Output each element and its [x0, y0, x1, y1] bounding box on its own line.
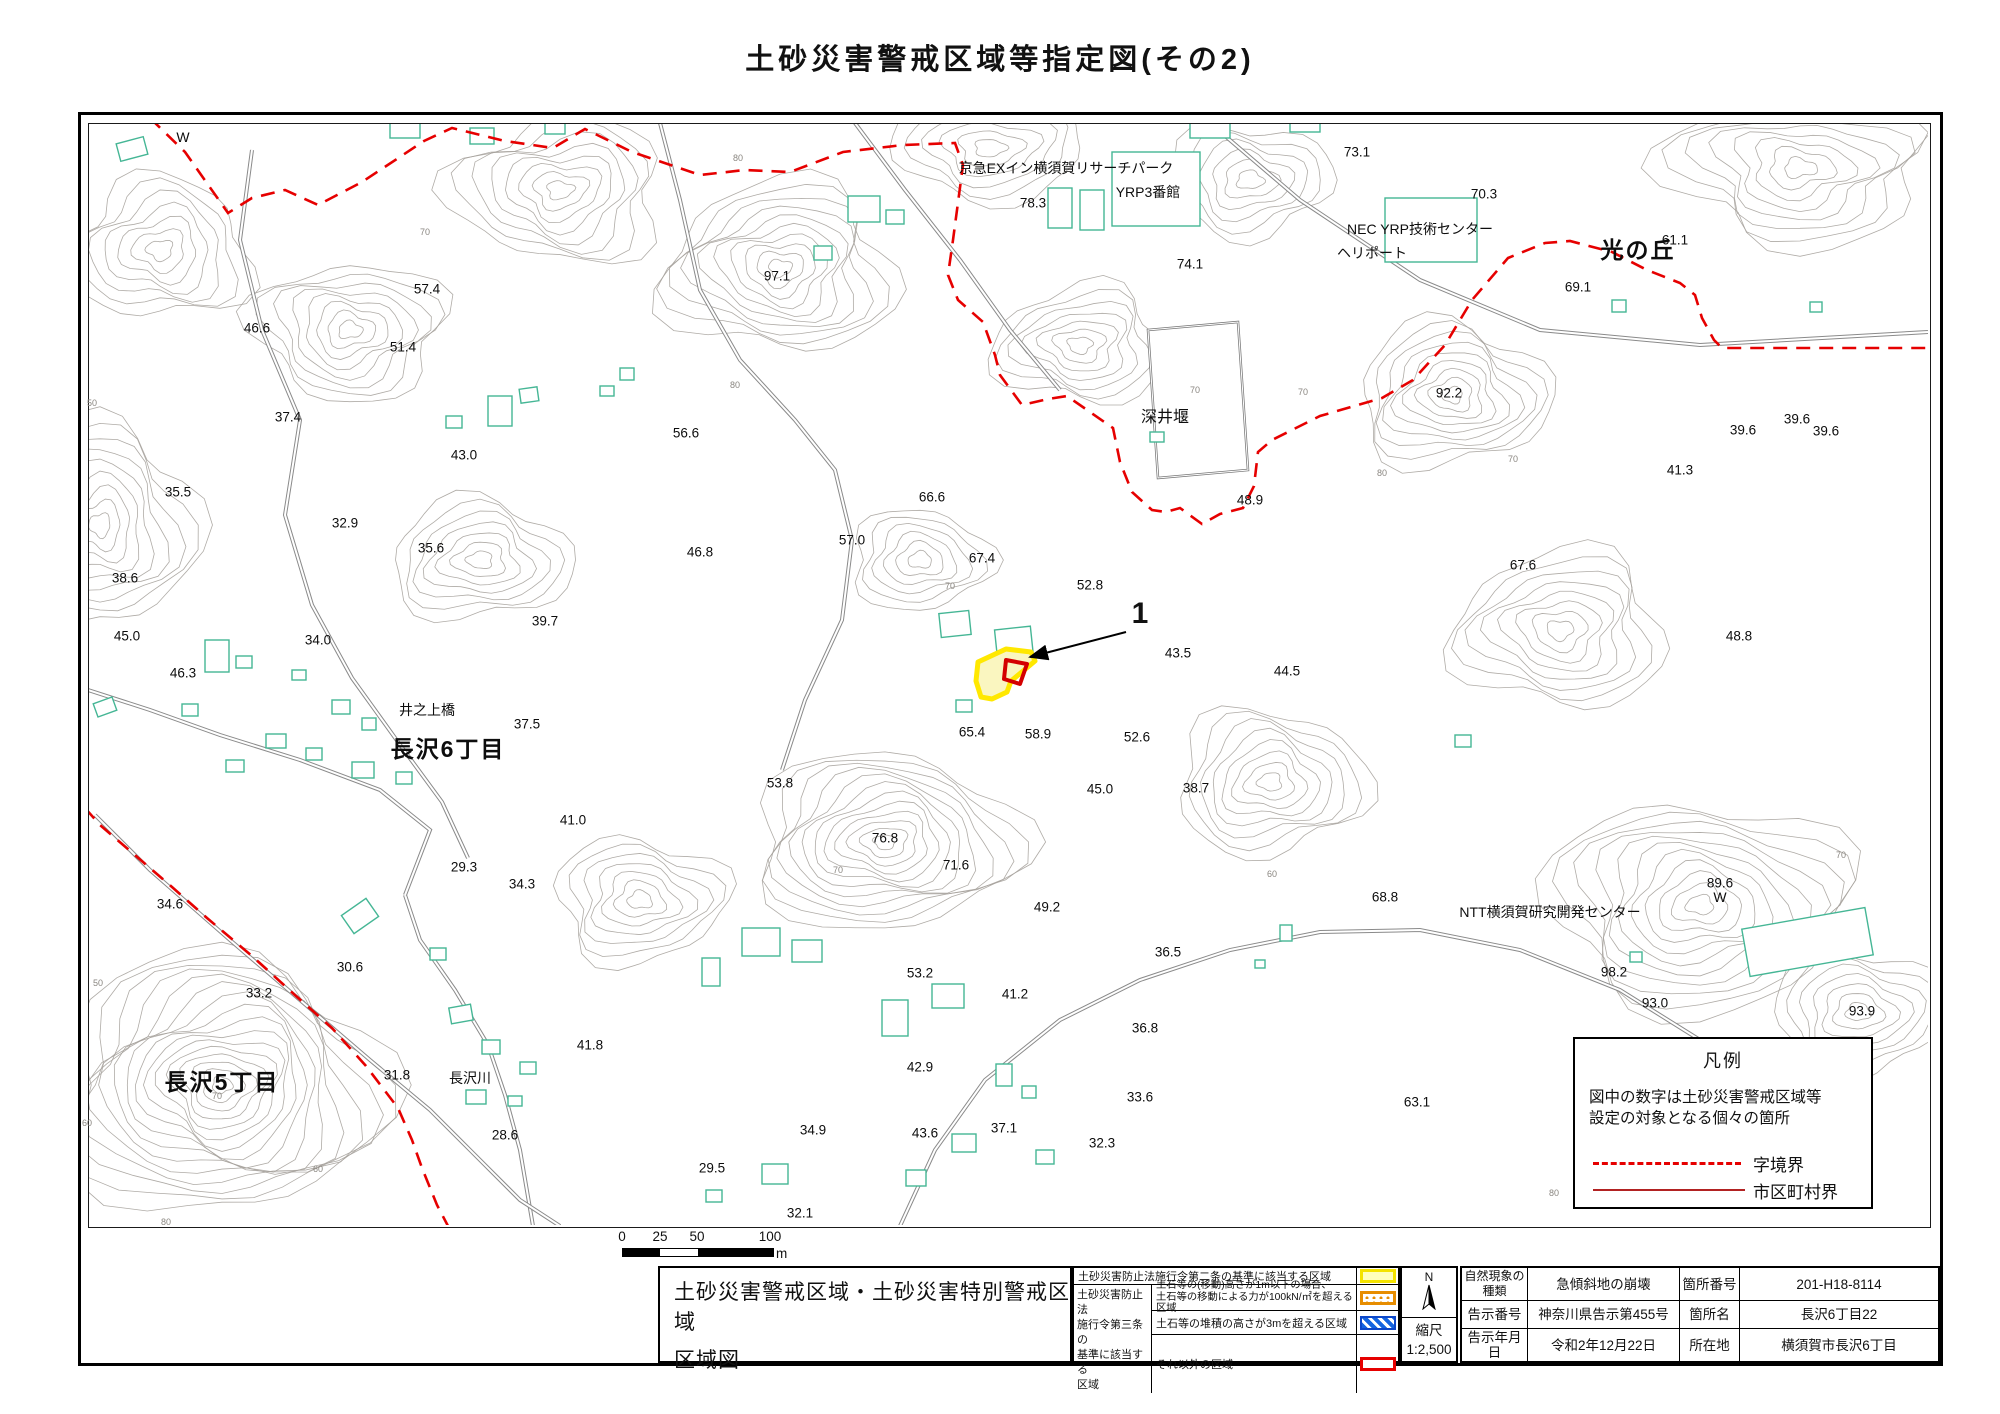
debris-force-line1: 土石等の(移動)高さが1m以下の場合、 — [1156, 1280, 1356, 1292]
contour-line — [328, 310, 376, 349]
legend-article3-line1: 土砂災害防止法 — [1077, 1289, 1143, 1316]
contour-line — [975, 140, 1009, 157]
contour-line — [777, 767, 993, 906]
contour-line — [236, 266, 453, 402]
contour-line — [681, 206, 855, 327]
scalebar-seg-white — [660, 1249, 698, 1256]
building-footprint — [906, 1170, 926, 1186]
building-footprint — [236, 656, 252, 668]
contour-line — [465, 551, 492, 569]
scale-cell: 縮尺 1:2,500 — [1402, 1318, 1456, 1361]
contour-line — [802, 782, 960, 892]
contour-line — [180, 1054, 269, 1119]
info-value-site-number: 201-H18-8114 — [1740, 1268, 1938, 1301]
contour-line — [855, 510, 1003, 610]
contour-line — [627, 890, 653, 909]
contour-line — [908, 550, 931, 568]
building-footprint — [466, 1090, 486, 1104]
contour-line — [1067, 337, 1094, 354]
scalebar-unit: m — [776, 1246, 787, 1261]
scalebar-tick-0: 0 — [618, 1229, 626, 1244]
contour-line — [824, 801, 939, 882]
north-arrow-icon — [1422, 1284, 1436, 1310]
building-footprint — [430, 948, 446, 960]
building-footprint — [1048, 188, 1072, 228]
contour-line — [922, 115, 1058, 188]
map-legend-title: 凡例 — [1575, 1047, 1871, 1073]
contour-line — [1428, 377, 1472, 412]
legend-row-debris-force-swatch-cell — [1357, 1285, 1398, 1310]
contour-line — [602, 871, 683, 926]
blue-zone-swatch — [1360, 1316, 1396, 1330]
building-footprint — [762, 1164, 788, 1184]
building-footprint — [600, 386, 614, 396]
legend-row-other-label: それ以外の区域 — [1152, 1335, 1357, 1393]
building-footprint — [956, 700, 972, 712]
scalebar-seg-black2 — [698, 1249, 773, 1256]
building-footprint — [886, 210, 904, 224]
contour-line — [1547, 621, 1574, 642]
contour-line — [72, 942, 411, 1211]
contour-line — [256, 274, 445, 395]
building-footprint — [60, 455, 74, 475]
contour-line — [1236, 170, 1265, 189]
legend-row-deposit-height: 土石等の堆積の高さが3mを超える区域 — [1152, 1311, 1398, 1335]
aza-boundary-dashed-line — [150, 118, 1928, 524]
building-footprint — [482, 1040, 500, 1054]
map-title-line1: 土砂災害警戒区域・土砂災害特別警戒区域 — [674, 1276, 1070, 1336]
contour-line — [872, 523, 973, 594]
road-centre — [660, 123, 852, 770]
building-footprint — [292, 670, 306, 680]
building-footprint — [792, 940, 822, 962]
contour-line — [1440, 386, 1462, 404]
contour-line — [904, 108, 1068, 199]
contour-line — [768, 259, 792, 278]
contour-line — [1833, 994, 1886, 1029]
contour-line — [67, 955, 396, 1199]
road-casing — [88, 690, 430, 895]
contour-line — [27, 449, 169, 590]
contour-line — [1785, 156, 1818, 178]
contour-line — [118, 216, 196, 285]
building-footprint — [742, 928, 780, 956]
contour-line — [155, 1040, 285, 1140]
building-footprint — [882, 1000, 908, 1036]
contour-line — [1242, 762, 1294, 800]
building-footprint — [1385, 198, 1477, 262]
building-footprint — [116, 137, 148, 162]
orange-zone-swatch — [1360, 1291, 1396, 1305]
yellow-zone-swatch — [1360, 1269, 1396, 1283]
contour-line — [166, 1046, 277, 1129]
compass-cell: N — [1402, 1268, 1456, 1318]
map-title-line2: 区域図 — [674, 1344, 1070, 1374]
contour-line — [273, 283, 431, 388]
callout-arrow — [1030, 632, 1126, 657]
building-footprint — [1255, 960, 1265, 968]
building-footprint — [205, 640, 229, 672]
legend-article3-group-label: 土砂災害防止法 施行令第三条の 基準に該当する 区域 — [1074, 1285, 1152, 1393]
contour-line — [78, 499, 120, 552]
contour-line — [896, 540, 943, 575]
building-footprint — [932, 984, 964, 1008]
road-centre — [95, 815, 560, 1226]
contour-line — [1414, 368, 1481, 418]
contour-line — [51, 471, 138, 572]
building-footprint — [1080, 190, 1104, 230]
info-label-notice-number: 告示番号 — [1462, 1301, 1528, 1329]
legend-article3-line2: 施行令第三条の — [1077, 1319, 1143, 1346]
contour-line — [472, 132, 638, 255]
scalebar-tick-25: 25 — [652, 1229, 667, 1244]
map-legend-note: 図中の数字は土砂災害警戒区域等 設定の対象となる個々の箇所 — [1589, 1087, 1871, 1129]
scalebar-tick-100: 100 — [759, 1229, 782, 1244]
legend-row-other-swatch-cell — [1357, 1335, 1398, 1393]
building-footprint — [1112, 152, 1200, 226]
contour-line — [939, 122, 1044, 176]
contour-line — [714, 223, 840, 316]
contour-line — [1181, 706, 1378, 861]
info-value-location: 横須賀市長沢6丁目 — [1740, 1329, 1938, 1361]
info-label-site-number: 箇所番号 — [1680, 1268, 1740, 1301]
legend-row-other: それ以外の区域 — [1152, 1335, 1398, 1393]
contour-line — [204, 1069, 246, 1103]
contour-line — [1443, 540, 1669, 710]
building-footprint — [706, 1190, 722, 1202]
contour-line — [1516, 601, 1603, 663]
contour-line — [553, 835, 736, 971]
map-legend-note-line2: 設定の対象となる個々の箇所 — [1589, 1110, 1790, 1127]
contour-line — [11, 407, 212, 628]
contour-line — [1403, 360, 1496, 424]
building-footprint — [488, 396, 512, 426]
building-footprint — [952, 1134, 976, 1152]
contour-line — [883, 531, 956, 584]
building-footprint — [93, 697, 117, 717]
contour-line — [1189, 711, 1361, 851]
designation-info-table: 自然現象の種類 急傾斜地の崩壊 箇所番号 201-H18-8114 告示番号 神… — [1460, 1266, 1940, 1363]
contour-line — [1036, 321, 1118, 371]
hazard-legend-table: 土砂災害防止法施行令第二条の基準に該当する区域 土砂災害防止法 施行令第三条の … — [1072, 1266, 1400, 1363]
contour-line — [1187, 131, 1320, 234]
contour-line — [317, 301, 388, 359]
building-footprint — [446, 416, 462, 428]
north-label: N — [1425, 1270, 1434, 1284]
contour-line — [449, 542, 505, 576]
legend-article3-line4: 区域 — [1077, 1379, 1099, 1391]
info-value-phenomenon: 急傾斜地の崩壊 — [1528, 1268, 1680, 1301]
legend-row-article2-swatch-cell — [1357, 1268, 1398, 1284]
contour-line — [988, 275, 1165, 405]
contour-line — [532, 172, 590, 212]
legend-solid-label: 市区町村界 — [1753, 1178, 1838, 1203]
contour-line — [413, 511, 551, 600]
contour-line — [1532, 611, 1588, 652]
legend-row-debris-force-label: 土石等の(移動)高さが1m以下の場合、 土石等の移動による力が100kN/㎡を超… — [1152, 1285, 1357, 1310]
contour-line — [72, 178, 239, 306]
legend-dashed-line-sample — [1593, 1162, 1741, 1165]
building-footprint — [332, 700, 350, 714]
contour-line — [105, 202, 208, 294]
contour-line — [1375, 320, 1548, 459]
map-legend-box: 凡例 図中の数字は土砂災害警戒区域等 設定の対象となる個々の箇所 字境界 市区町… — [1573, 1037, 1873, 1209]
building-footprint — [362, 718, 376, 730]
building-footprint — [939, 610, 971, 637]
contour-line — [872, 835, 897, 850]
contour-line — [613, 880, 666, 917]
contour-line — [584, 853, 714, 943]
info-value-notice-number: 神奈川県告示第455号 — [1528, 1301, 1680, 1329]
contour-line — [1769, 146, 1837, 190]
contour-line — [1845, 1002, 1872, 1020]
scale-label: 縮尺 — [1416, 1321, 1443, 1340]
scalebar-tick-50: 50 — [689, 1229, 704, 1244]
legend-solid-line-sample — [1593, 1189, 1745, 1191]
scalebar — [622, 1248, 774, 1257]
building-footprint — [848, 196, 880, 222]
contour-line — [131, 229, 184, 274]
contour-line — [339, 320, 363, 339]
building-footprint — [1810, 302, 1822, 312]
contour-line — [143, 1031, 288, 1152]
contour-line — [1376, 331, 1537, 446]
info-label-notice-date: 告示年月日 — [1462, 1329, 1528, 1361]
building-footprint — [266, 734, 286, 748]
contour-line — [192, 1062, 257, 1111]
contour-line — [75, 969, 363, 1185]
info-label-site-name: 箇所名 — [1680, 1301, 1740, 1329]
building-footprint — [1290, 112, 1320, 132]
building-footprint — [449, 1004, 473, 1024]
building-footprint — [1455, 735, 1471, 747]
building-footprint — [390, 118, 420, 138]
contour-line — [145, 240, 173, 261]
scale-value: 1:2,500 — [1406, 1340, 1451, 1359]
contour-line — [492, 143, 625, 245]
contour-line — [1222, 740, 1321, 816]
contour-line — [1535, 805, 1860, 1024]
legend-row-deposit-height-swatch-cell — [1357, 1311, 1398, 1334]
road-centre — [88, 690, 430, 895]
contour-line — [1574, 821, 1845, 993]
contour-line — [1685, 894, 1714, 915]
building-footprint — [814, 246, 832, 260]
building-footprint — [702, 958, 720, 986]
building-footprint — [352, 762, 374, 778]
building-footprint — [545, 120, 565, 134]
legend-dashed-label: 字境界 — [1753, 1151, 1804, 1176]
contour-line — [1256, 773, 1282, 791]
contour-line — [958, 131, 1028, 166]
reservoir-outline — [1148, 322, 1248, 478]
contour-line — [99, 982, 323, 1175]
building-footprint — [1612, 300, 1626, 312]
road-casing — [660, 123, 852, 770]
contour-line — [89, 513, 110, 539]
legend-row-deposit-height-label: 土石等の堆積の高さが3mを超える区域 — [1152, 1311, 1357, 1334]
contour-line — [1709, 125, 1900, 219]
contour-line — [746, 244, 816, 300]
contour-line — [135, 1017, 296, 1160]
legend-article3-line3: 基準に該当する — [1077, 1349, 1143, 1376]
building-footprint — [396, 772, 412, 784]
contour-line — [423, 522, 536, 593]
building-footprint — [1280, 925, 1292, 941]
contour-line — [1052, 329, 1107, 363]
contour-line — [212, 1076, 233, 1094]
building-footprint — [182, 704, 198, 716]
building-footprint — [1630, 952, 1642, 962]
building-footprint — [226, 760, 244, 772]
legend-row-debris-force: 土石等の(移動)高さが1m以下の場合、 土石等の移動による力が100kN/㎡を超… — [1152, 1285, 1398, 1311]
info-value-notice-date: 令和2年12月22日 — [1528, 1329, 1680, 1361]
building-footprint — [520, 1062, 536, 1074]
building-footprint — [1742, 908, 1873, 977]
road-casing — [95, 815, 560, 1226]
contour-line — [1451, 557, 1651, 701]
info-value-site-name: 長沢6丁目22 — [1740, 1301, 1938, 1329]
scalebar-seg-black1 — [623, 1249, 660, 1256]
building-footprint — [1036, 1150, 1054, 1164]
info-label-location: 所在地 — [1680, 1329, 1740, 1361]
contour-line — [757, 251, 803, 289]
contour-line — [859, 828, 908, 857]
contour-line — [435, 533, 520, 585]
contour-line — [547, 181, 576, 200]
building-footprint — [65, 620, 81, 648]
contour-line — [1383, 342, 1525, 440]
map-title-box: 土砂災害警戒区域・土砂災害特別警戒区域 区域図 — [658, 1266, 1072, 1363]
building-footprint — [1022, 1086, 1036, 1098]
building-footprint — [519, 387, 539, 403]
building-footprint — [341, 898, 378, 933]
building-footprint — [996, 1064, 1012, 1086]
building-footprint — [620, 368, 634, 380]
building-footprint — [1150, 432, 1164, 442]
building-footprint — [1190, 112, 1230, 138]
contour-line — [1734, 132, 1880, 212]
compass-and-scale-column: N 縮尺 1:2,500 — [1400, 1266, 1458, 1363]
road-centre — [855, 123, 1060, 390]
building-footprint — [306, 748, 322, 760]
building-footprint — [470, 128, 494, 144]
contour-line — [1201, 718, 1345, 837]
red-zone-swatch — [1360, 1357, 1396, 1371]
contour-line — [19, 439, 186, 602]
contour-line — [1671, 883, 1727, 924]
contour-line — [1645, 860, 1755, 943]
info-label-phenomenon: 自然現象の種類 — [1462, 1268, 1528, 1301]
map-legend-note-line1: 図中の数字は土砂災害警戒区域等 — [1589, 1089, 1822, 1106]
building-footprint — [508, 1096, 522, 1106]
